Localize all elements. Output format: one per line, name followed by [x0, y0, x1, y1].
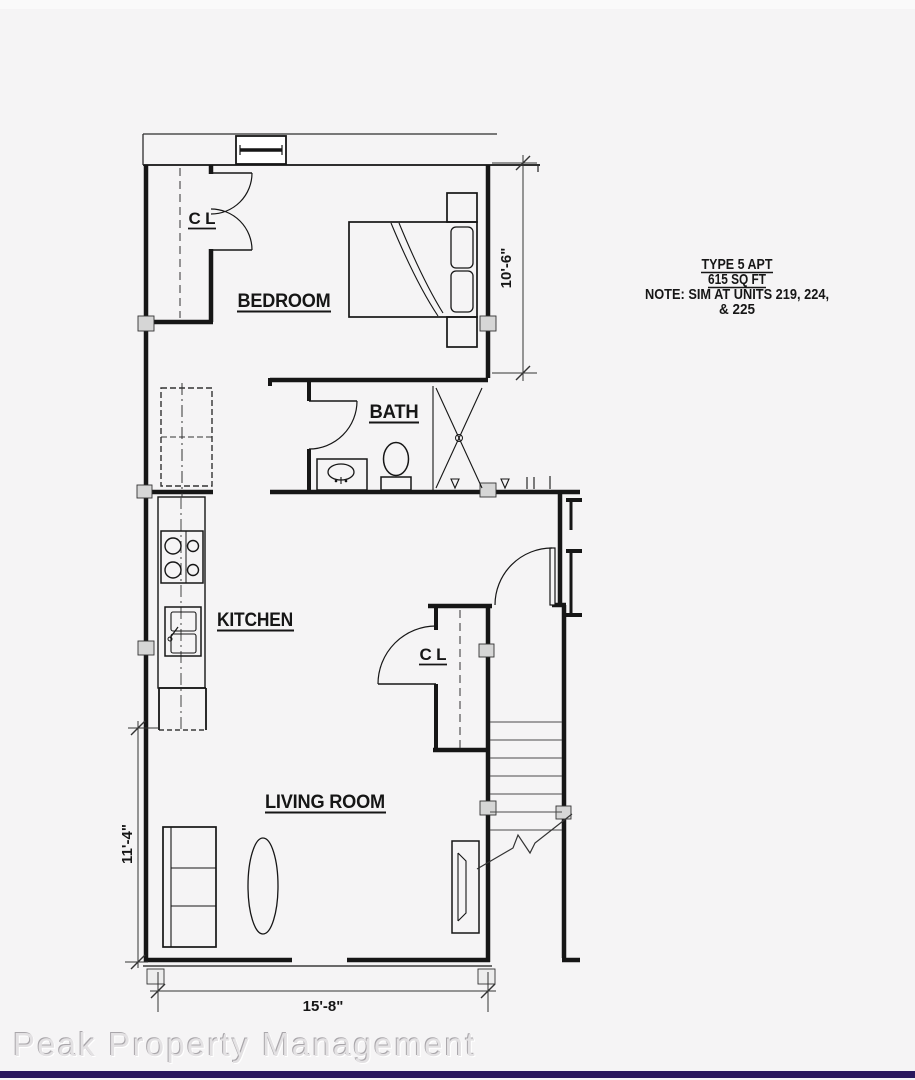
living-closet-door — [378, 610, 460, 748]
bedroom-closet-label: CL — [189, 209, 216, 228]
toilet-tank — [381, 477, 411, 490]
watermark: Peak Property Management — [13, 1026, 477, 1064]
tv-console — [452, 841, 479, 933]
bed-furniture — [349, 193, 477, 347]
burner — [165, 538, 181, 554]
blanket-fold — [399, 223, 443, 313]
dimension-living-depth-label: 11'-4" — [119, 824, 136, 864]
blanket-fold — [391, 223, 438, 316]
sofa-furniture — [163, 827, 216, 947]
pillow — [451, 271, 473, 312]
burner — [165, 562, 181, 578]
floor-plan-drawing: 10'-6" 11'-4" 15'-8" CL BEDROOM BATH KIT… — [0, 0, 915, 1080]
stair-break-line — [477, 814, 572, 869]
bedroom-label: BEDROOM — [238, 291, 331, 312]
bath-label: BATH — [370, 402, 419, 423]
refrigerator-dashed — [161, 383, 212, 497]
window-symbol — [236, 136, 286, 164]
bath-door — [309, 401, 357, 449]
entry-door — [495, 548, 555, 605]
toilet-bowl — [384, 443, 409, 476]
floor-plan-page: 10'-6" 11'-4" 15'-8" CL BEDROOM BATH KIT… — [0, 0, 915, 1080]
dimension-bedroom-depth-label: 10'-6" — [498, 248, 515, 289]
burner — [188, 541, 199, 552]
stairs — [477, 722, 572, 869]
bottom-accent-bar — [0, 1071, 915, 1078]
title-note2: & 225 — [719, 301, 755, 318]
entry-closet-label: CL — [420, 645, 447, 664]
walls — [143, 165, 582, 966]
wall-posts — [137, 316, 571, 984]
base-cabinet — [159, 688, 206, 730]
kitchen-label: KITCHEN — [217, 610, 293, 631]
pillow — [451, 227, 473, 268]
coffee-table — [248, 838, 278, 934]
title-block: TYPE 5 APT 615 SQ FT NOTE: SIM AT UNITS … — [645, 256, 829, 318]
burner — [188, 565, 199, 576]
dimension-unit-width-label: 15'-8" — [303, 998, 344, 1015]
exterior-reference-lines — [143, 134, 540, 172]
kitchen-counter — [158, 497, 206, 730]
plumbing-symbols — [451, 476, 550, 489]
living-room-label: LIVING ROOM — [265, 792, 385, 813]
